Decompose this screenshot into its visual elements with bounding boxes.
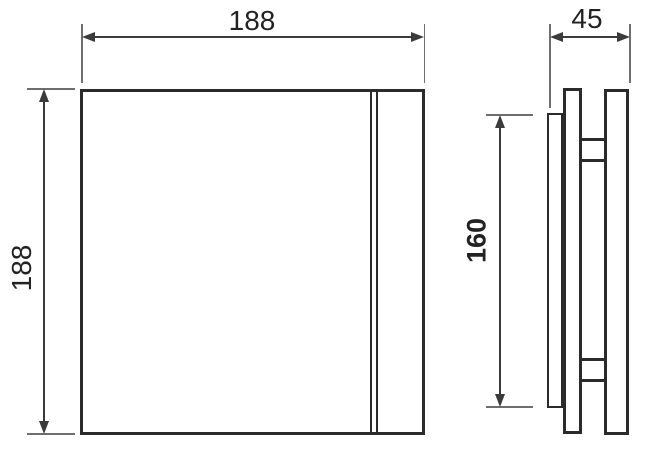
arrowhead-up-icon	[495, 115, 505, 128]
arrowhead-right-icon	[411, 32, 424, 42]
front-panel-outline	[80, 89, 425, 435]
dim-front-height-line	[43, 101, 45, 423]
side-connector-bottom-line-1	[581, 358, 606, 361]
dim-side-inner-height-tick-top	[486, 114, 533, 116]
side-back-plate-outline	[547, 113, 563, 408]
dim-side-depth-line	[562, 36, 618, 38]
arrowhead-down-icon	[39, 421, 49, 434]
dim-front-height-tick-bottom	[27, 433, 75, 435]
side-connector-top-line-2	[581, 159, 606, 162]
arrowhead-right-icon	[617, 32, 630, 42]
front-panel-groove-line-2	[376, 91, 378, 433]
dim-side-inner-height-line	[499, 127, 501, 395]
side-front-panel-outline	[563, 88, 582, 434]
dim-front-width-label: 188	[192, 7, 312, 35]
dim-front-height-tick-top	[27, 88, 75, 90]
side-connector-bottom-line-2	[581, 379, 606, 382]
dim-side-inner-height-label: 160	[464, 186, 491, 296]
dim-side-inner-height-tick-bottom	[486, 406, 533, 408]
dim-front-height-label: 188	[8, 208, 36, 328]
side-connector-top-line-1	[581, 138, 606, 141]
dim-side-depth-label: 45	[547, 5, 627, 33]
arrowhead-left-icon	[550, 32, 563, 42]
front-panel-groove-line-1	[370, 91, 372, 433]
arrowhead-up-icon	[39, 89, 49, 102]
arrowhead-left-icon	[82, 32, 95, 42]
dim-front-width-line	[94, 36, 412, 38]
technical-drawing: 188 188 45 160	[0, 0, 669, 459]
arrowhead-down-icon	[495, 394, 505, 407]
side-body-outline	[604, 89, 629, 435]
